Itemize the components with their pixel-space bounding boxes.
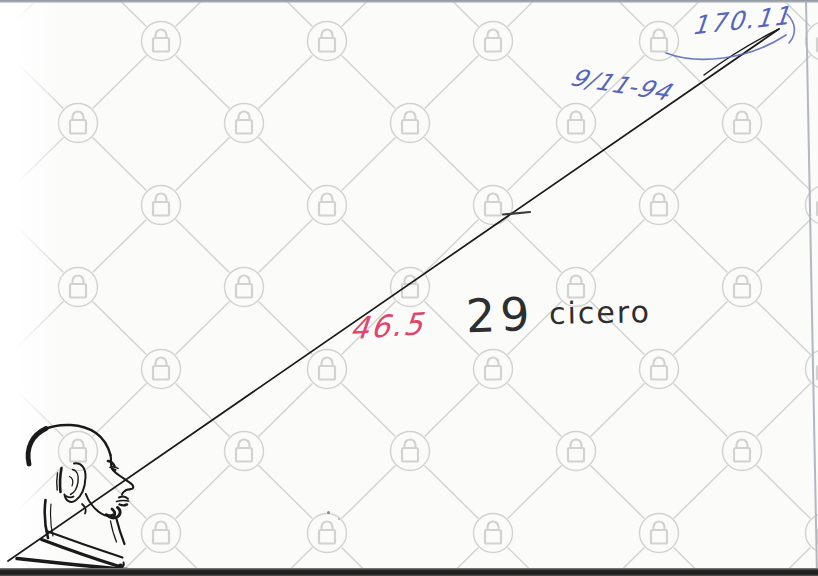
handwriting-pencil-note: 29cicero <box>466 288 650 342</box>
handwriting-red-value: 46.5 <box>348 306 426 347</box>
diagonal-line <box>8 29 779 561</box>
drawing-layer <box>0 0 818 576</box>
scanned-sheet: 170.11 9/11-94 46.5 29cicero <box>0 0 818 576</box>
right-paper-edge <box>806 0 817 576</box>
pencil-speck <box>338 518 340 520</box>
scan-bottom-edge <box>0 568 818 576</box>
pencil-number: 29 <box>465 287 535 343</box>
pencil-unit: cicero <box>548 294 650 331</box>
tick-mark <box>503 212 530 215</box>
head-profile-drawing <box>17 425 138 576</box>
pencil-speck <box>327 511 330 514</box>
scan-top-edge <box>0 0 818 3</box>
